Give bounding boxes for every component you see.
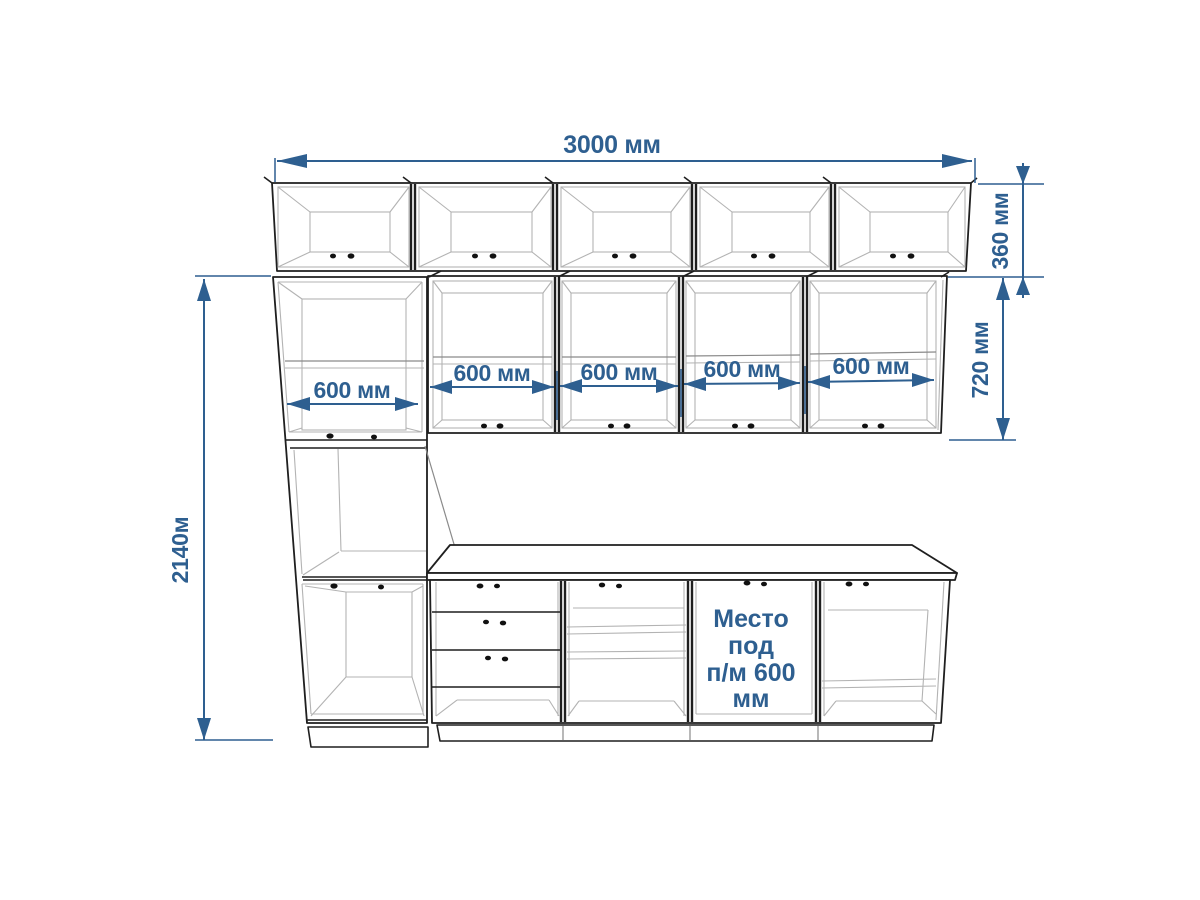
dishwasher-note-line-2: под	[728, 632, 774, 660]
dim-wall-height: 720 мм	[949, 278, 1016, 440]
base-plinth	[437, 725, 934, 741]
dim-total-width-label: 3000 мм	[563, 131, 660, 159]
dim-total-height-label: 2140м	[167, 517, 193, 584]
dim-unit-width-5-label: 600 мм	[833, 353, 910, 379]
dim-unit-width-3-label: 600 мм	[581, 359, 658, 385]
wall-cabinets-row	[428, 271, 949, 433]
base-cabinets-row	[430, 580, 950, 741]
dim-wall-height-label: 720 мм	[967, 322, 993, 399]
dim-unit-width-2-label: 600 мм	[454, 360, 531, 386]
kitchen-elevation-drawing: 3000 мм 360 мм 720 мм 2140м 600 мм 600 м…	[0, 0, 1200, 900]
dishwasher-note-line-4: мм	[733, 685, 770, 713]
drawing-canvas: 3000 мм 360 мм 720 мм 2140м 600 мм 600 м…	[0, 0, 1200, 900]
dim-total-width: 3000 мм	[275, 131, 975, 183]
dim-total-height: 2140м	[167, 276, 273, 740]
upper-cabinets-row	[264, 177, 977, 271]
dim-unit-width-1-label: 600 мм	[314, 377, 391, 403]
countertop	[427, 545, 957, 580]
dishwasher-note-line-1: Место	[713, 605, 789, 633]
dim-upper-height-label: 360 мм	[987, 193, 1013, 270]
tall-cabinet-plinth	[308, 727, 428, 747]
side-panel-edge	[425, 446, 456, 551]
dishwasher-note-line-3: п/м 600	[706, 659, 795, 687]
dim-unit-width-4-label: 600 мм	[704, 356, 781, 382]
